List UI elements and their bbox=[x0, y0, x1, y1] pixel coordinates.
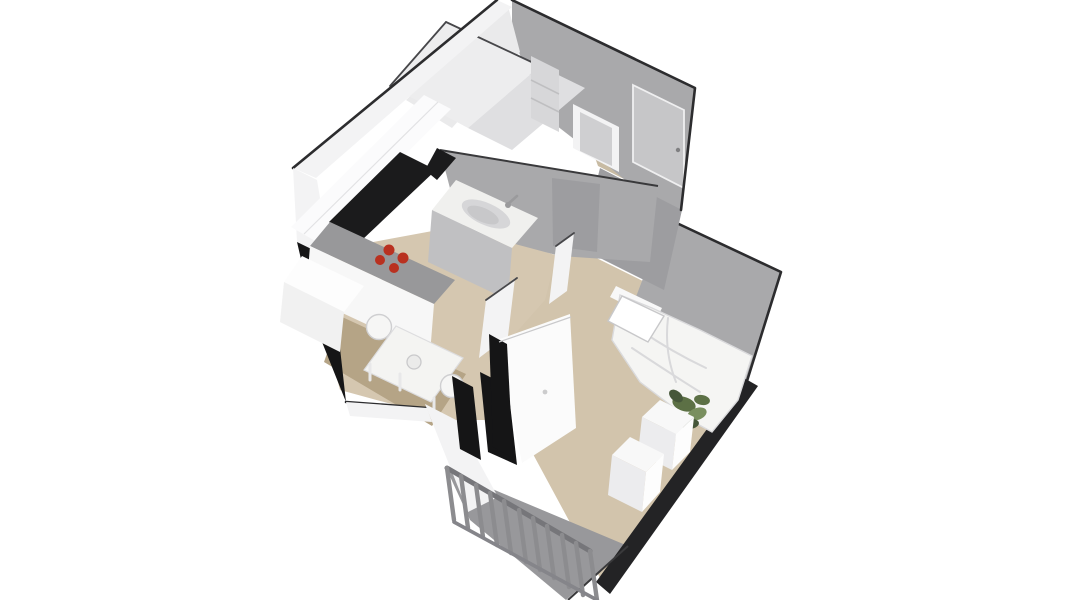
wardrobe-handle bbox=[543, 390, 548, 395]
floor-plan-render bbox=[0, 0, 1066, 600]
sink-faucet-base bbox=[505, 202, 511, 208]
dining-chair bbox=[367, 315, 392, 340]
stove-burner bbox=[375, 255, 385, 265]
stove-burner bbox=[384, 245, 395, 256]
floor-plan-canvas bbox=[0, 0, 1066, 600]
table-vase bbox=[407, 355, 421, 369]
stove-burner bbox=[398, 253, 409, 264]
wall-recessed-panel bbox=[552, 178, 600, 252]
entry-door-handle bbox=[676, 148, 680, 152]
stove-burner bbox=[389, 263, 399, 273]
